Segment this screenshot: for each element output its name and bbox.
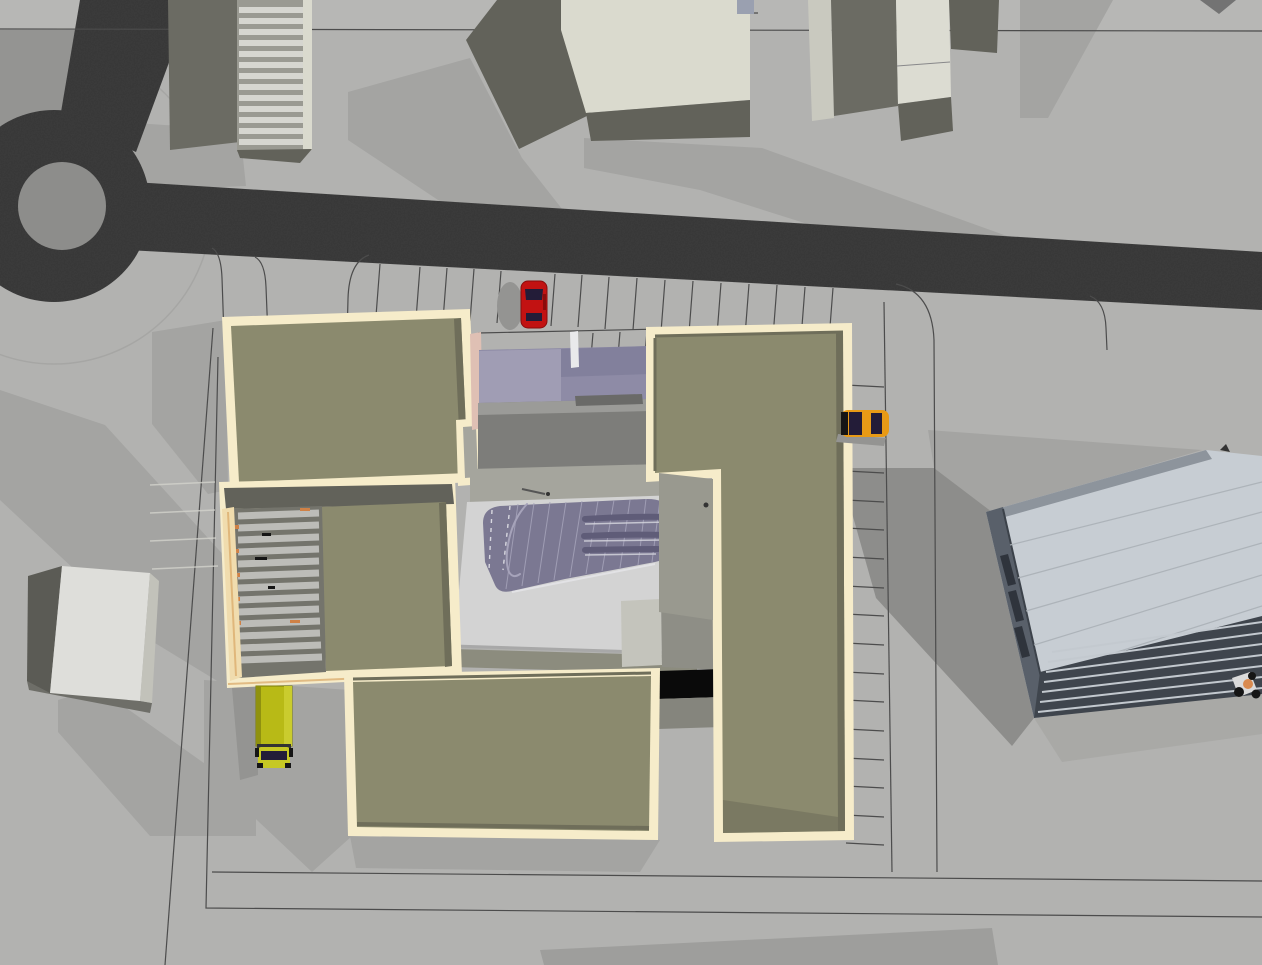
east-building-west-sliver	[808, 0, 834, 121]
louver-field-base	[230, 506, 326, 678]
striped-building-east-wall	[303, 0, 312, 151]
figure-ball-1	[1234, 687, 1244, 697]
orange-car-rear-window	[871, 413, 882, 434]
roundabout-island	[18, 162, 106, 250]
red-car-shadow	[497, 282, 523, 330]
entrance-canopy-light	[479, 349, 561, 407]
block-a-roof	[231, 318, 468, 482]
walkway-dot	[546, 492, 550, 496]
yard-figure-dot	[704, 503, 709, 508]
east-building-annex	[949, 0, 999, 53]
model-viewport[interactable]	[0, 0, 1262, 965]
east-building-roof	[896, 0, 951, 104]
atrium-vent-1	[585, 517, 670, 519]
lobby-roof-vent	[575, 394, 643, 406]
red-car-rear-window	[526, 313, 542, 321]
connector-light-block	[621, 599, 662, 667]
truck-wheel-2	[289, 748, 293, 757]
white-box-building	[27, 566, 159, 713]
small-blue-box	[737, 0, 754, 14]
red-car	[497, 281, 547, 330]
atrium-vent-2	[584, 535, 666, 536]
loading-dock-apron	[658, 697, 722, 729]
louver-accent-6	[300, 508, 310, 511]
louver-wing-khaki-roof	[320, 502, 452, 671]
loading-dock	[658, 669, 722, 699]
truck-wheel-1	[255, 748, 259, 757]
truck-box-lit-edge	[284, 686, 292, 746]
striped-building-dark-face	[168, 0, 240, 150]
red-car-windshield	[525, 289, 543, 300]
truck-box-shade-edge	[256, 686, 261, 746]
truck-wheel-3	[257, 763, 263, 768]
figure-ball-3	[1248, 672, 1256, 680]
louver-accent-7	[290, 620, 300, 623]
site-3d-render[interactable]	[0, 0, 1262, 965]
center-building-roof	[561, 0, 750, 113]
orange-car	[836, 410, 889, 446]
figure-ball-2	[1252, 690, 1261, 699]
truck-wheel-4	[285, 763, 291, 768]
truck-windshield	[261, 751, 287, 760]
red-car-side-glass	[543, 294, 546, 310]
figure-head	[1243, 679, 1253, 689]
shadow-south-of-south-block	[350, 836, 660, 872]
louver-speck-1	[262, 533, 271, 536]
east-building-dark-face	[831, 0, 898, 116]
box-roof	[50, 566, 150, 701]
striped-building-ridges	[239, 10, 303, 142]
canopy-pillar	[570, 331, 579, 368]
south-block-roof	[353, 676, 651, 831]
orange-car-windshield	[849, 412, 862, 435]
yellow-box-truck	[255, 686, 293, 768]
orange-car-front-dark	[841, 412, 848, 435]
louver-speck-3	[268, 586, 275, 589]
service-yard-pad	[659, 473, 713, 620]
atrium-vent-3	[585, 549, 658, 550]
louver-speck-2	[255, 557, 267, 560]
